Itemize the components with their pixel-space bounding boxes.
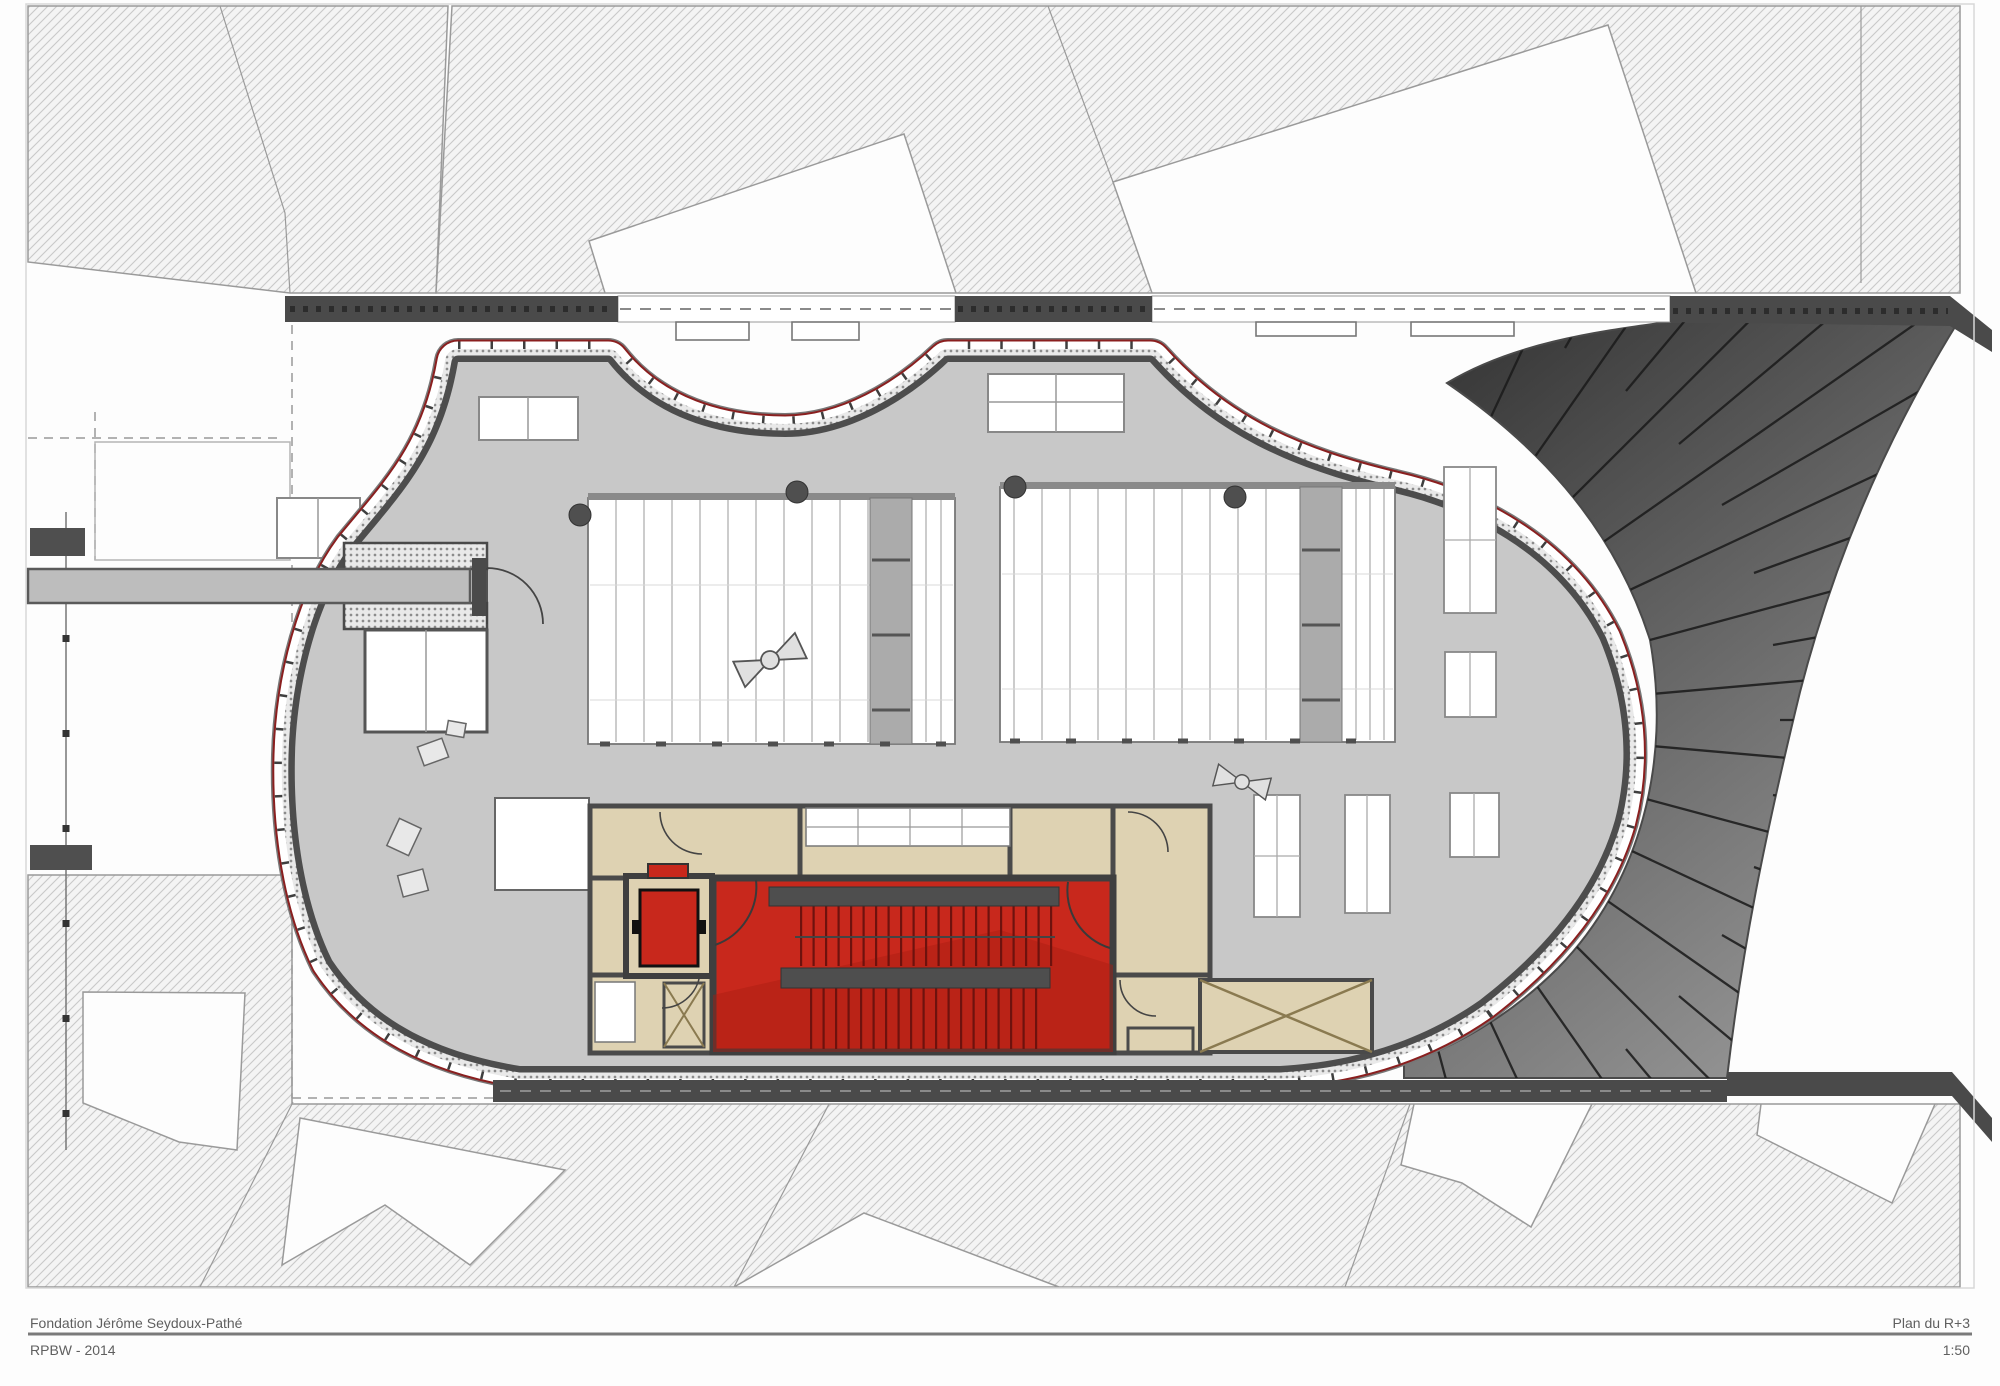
stair-hall [713,878,1113,1052]
shelving-block-1 [588,493,955,744]
elevator-cab [640,890,698,966]
drawing-scale: 1:50 [1943,1342,1970,1358]
footbridge [28,569,470,603]
project-name: Fondation Jérôme Seydoux-Pathé [30,1315,243,1331]
stair-landing-upper [769,887,1059,906]
elevator [626,864,712,976]
firm-and-year: RPBW - 2014 [30,1342,116,1358]
shelving-block-2 [1000,482,1395,742]
party-wall-stub-upper [30,528,85,556]
drawing-sheet: Fondation Jérôme Seydoux-Pathé RPBW - 20… [0,0,2000,1386]
shelving-aisle [1300,487,1342,742]
party-wall-stub-lower [30,845,92,870]
shelving-aisle [870,498,912,744]
stair-landing-mid [781,968,1050,988]
floor-plan-svg: Fondation Jérôme Seydoux-Pathé RPBW - 20… [0,0,2000,1386]
party-wall-left [285,296,618,322]
drawing-title: Plan du R+3 [1893,1315,1971,1331]
square-table [495,798,589,890]
